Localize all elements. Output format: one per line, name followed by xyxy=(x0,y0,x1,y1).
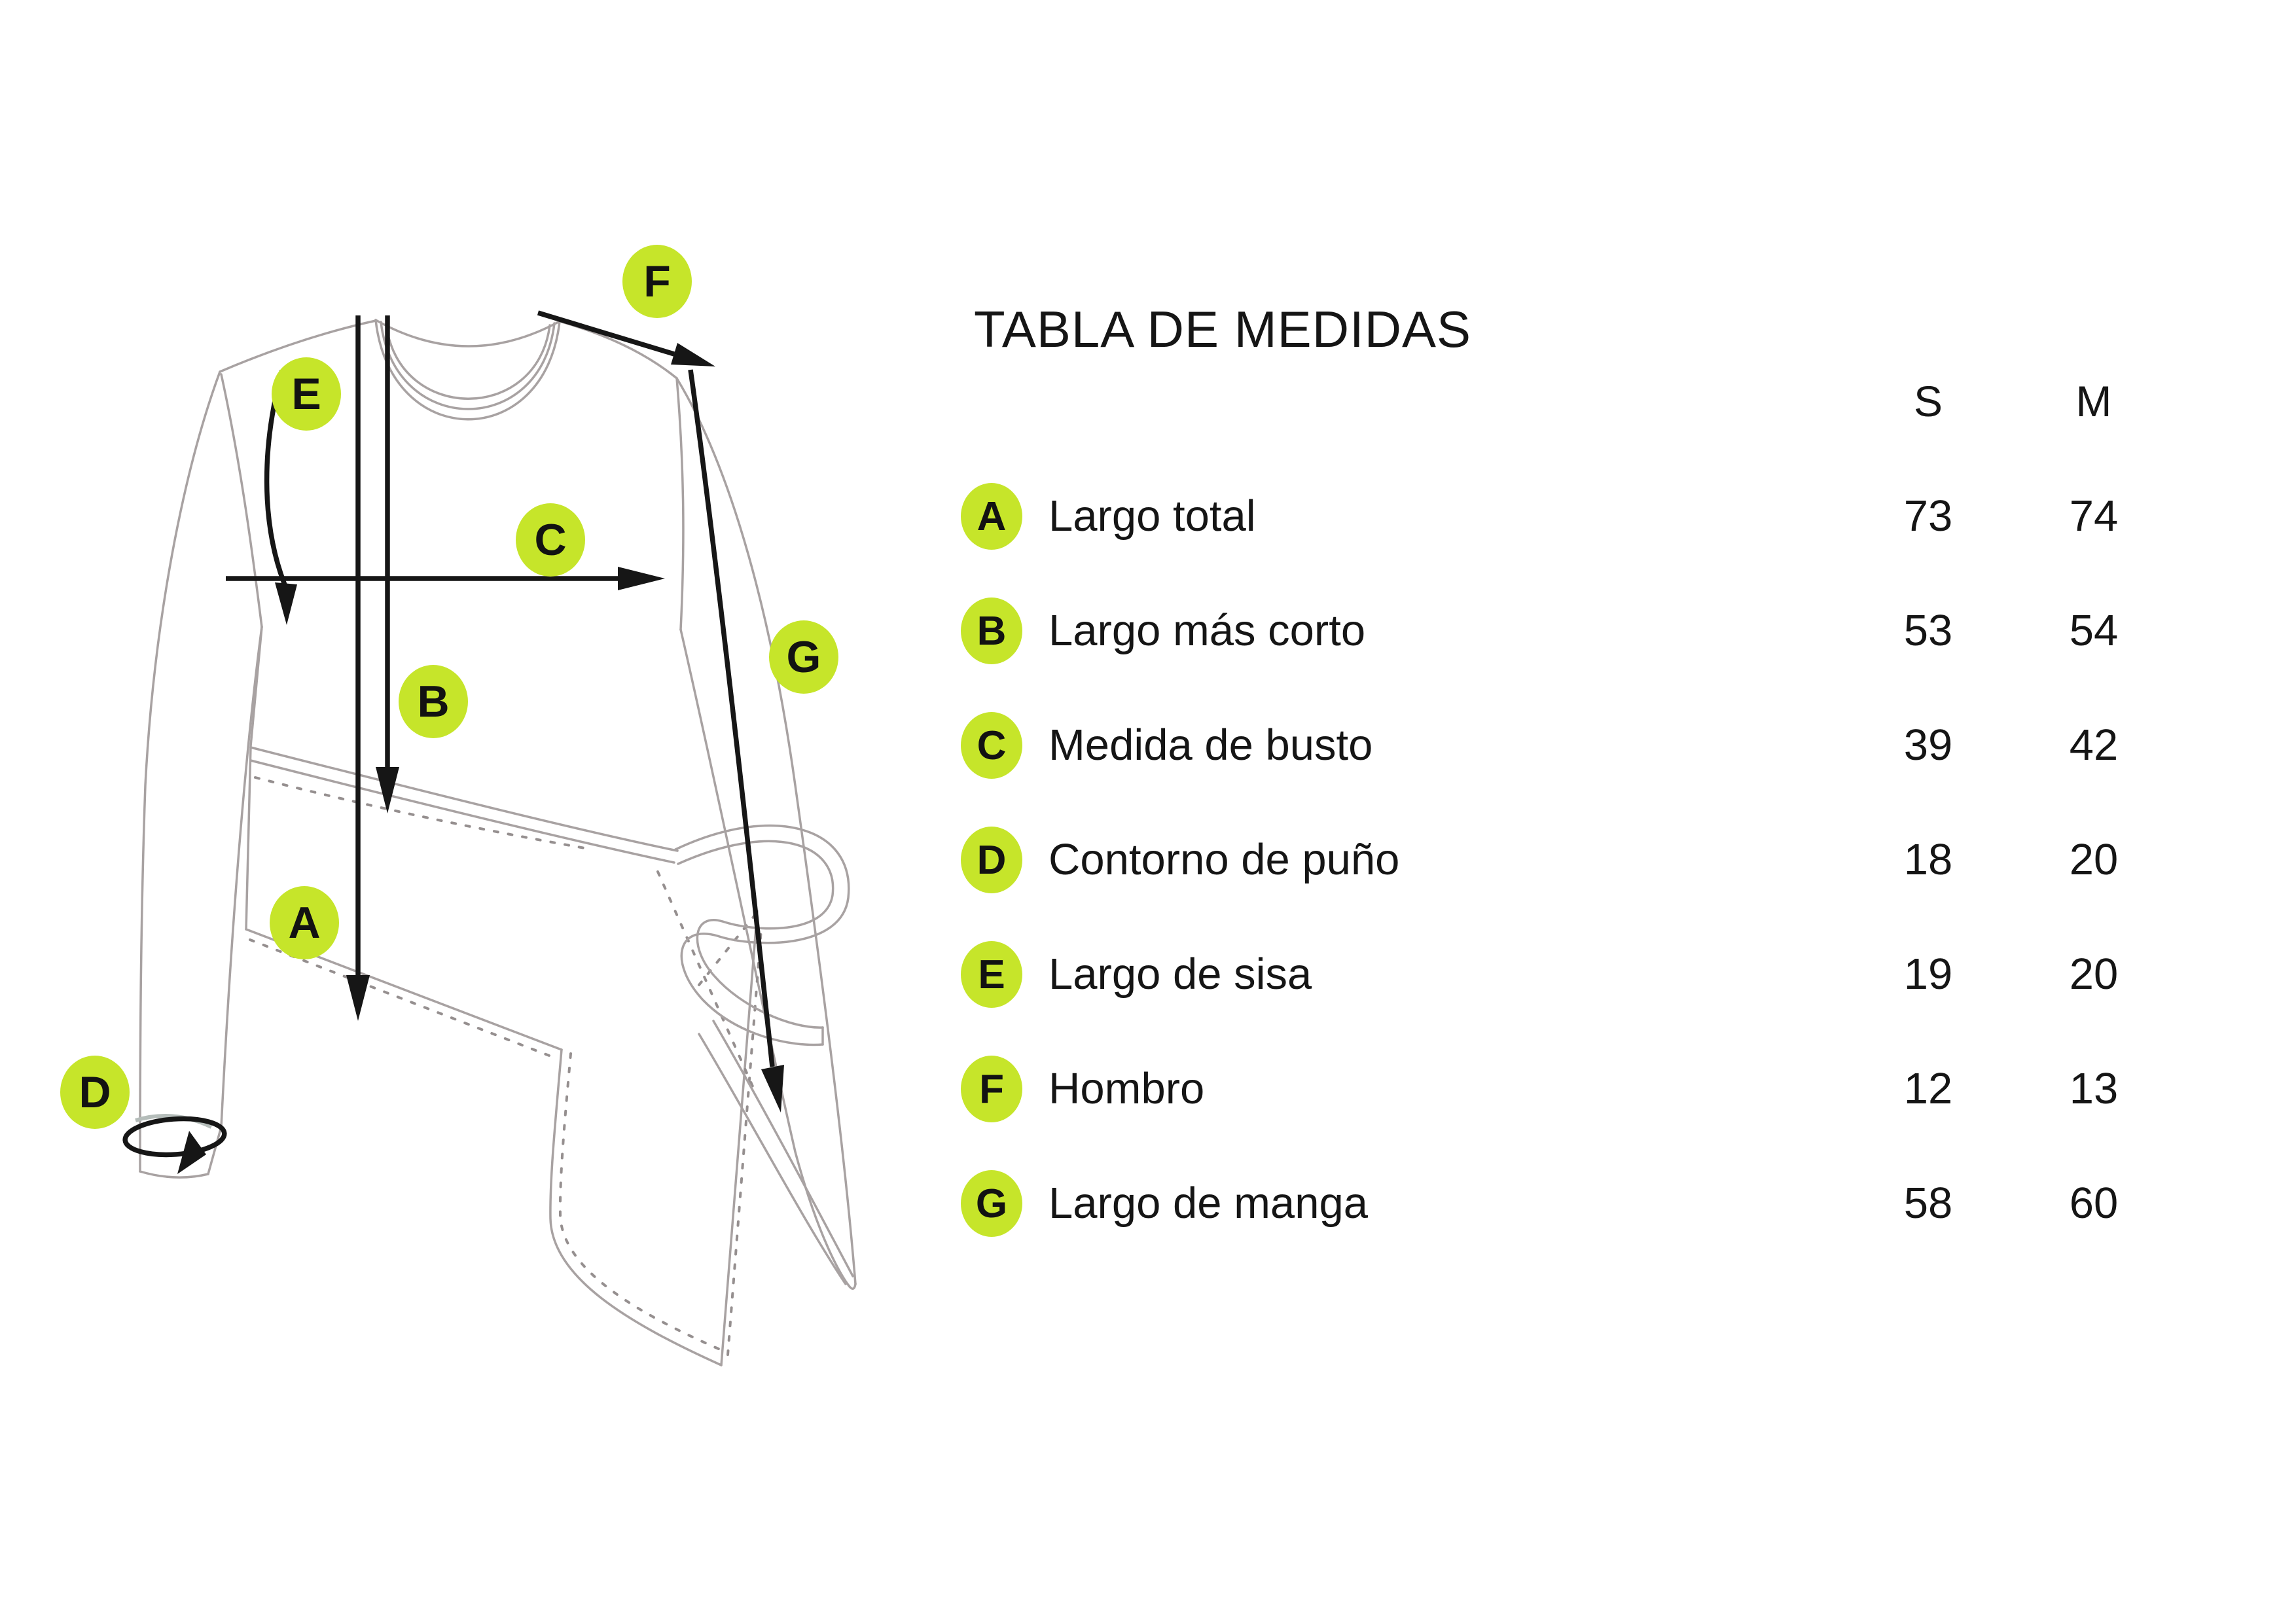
row-label-g: Largo de manga xyxy=(1049,1177,1368,1230)
size-chart-page: E F C B G A D TABLA DE MEDIDAS S M A Lar… xyxy=(0,0,2296,1623)
right-sleeve-outer-edge xyxy=(677,378,855,1284)
arrowhead-g-icon xyxy=(761,1065,784,1113)
row-label-d: Contorno de puño xyxy=(1049,833,1399,887)
waist-seam-lower xyxy=(251,760,674,863)
row-badge-a-letter: A xyxy=(977,493,1007,540)
diagram-badge-g: G xyxy=(769,620,838,694)
arrowhead-f-icon xyxy=(671,343,715,366)
diagram-badge-g-letter: G xyxy=(787,632,821,683)
diagram-badge-f-letter: F xyxy=(643,256,671,307)
measurement-arrows xyxy=(124,313,784,1174)
right-sleeve-inner-edge xyxy=(681,630,850,1287)
row-badge-f-letter: F xyxy=(979,1066,1004,1113)
diagram-badge-c: C xyxy=(516,503,585,577)
diagram-badge-b-letter: B xyxy=(417,676,449,727)
row-badge-g-letter: G xyxy=(976,1181,1007,1227)
row-label-b: Largo más corto xyxy=(1049,604,1365,658)
garment-technical-drawing xyxy=(0,0,2296,1623)
row-d-value-s: 18 xyxy=(1856,833,2000,887)
right-armhole-seam xyxy=(677,378,683,630)
row-f-value-s: 12 xyxy=(1856,1062,2000,1116)
row-b-value-s: 53 xyxy=(1856,604,2000,658)
page-title: TABLA DE MEDIDAS xyxy=(974,300,1471,359)
diagram-badge-c-letter: C xyxy=(534,514,566,565)
row-badge-c: C xyxy=(961,712,1022,779)
row-badge-d: D xyxy=(961,827,1022,893)
diagram-badge-e-letter: E xyxy=(291,368,321,419)
diagram-badge-d-letter: D xyxy=(79,1067,111,1118)
row-g-value-m: 60 xyxy=(2022,1177,2166,1230)
right-sleeve-tip xyxy=(850,1284,855,1289)
row-label-a: Largo total xyxy=(1049,490,1256,543)
row-g-value-s: 58 xyxy=(1856,1177,2000,1230)
front-panel-edge xyxy=(550,1050,721,1365)
left-cuff-bottom xyxy=(140,1171,208,1177)
row-badge-g: G xyxy=(961,1170,1022,1237)
diagram-badge-b: B xyxy=(399,665,468,738)
diagram-badge-e: E xyxy=(272,357,341,431)
arrowhead-b-icon xyxy=(376,767,399,813)
left-armhole-seam xyxy=(221,374,262,627)
under-layer-stitch-1 xyxy=(658,872,753,1086)
row-a-value-s: 73 xyxy=(1856,490,2000,543)
row-label-c: Medida de busto xyxy=(1049,719,1372,772)
row-e-value-s: 19 xyxy=(1856,948,2000,1001)
row-badge-b-letter: B xyxy=(977,608,1007,654)
front-panel-stitch xyxy=(560,1054,720,1349)
arrowhead-a-icon xyxy=(346,975,370,1021)
row-a-value-m: 74 xyxy=(2022,490,2166,543)
row-badge-c-letter: C xyxy=(977,722,1007,769)
diagram-badge-a-letter: A xyxy=(288,897,320,948)
row-label-f: Hombro xyxy=(1049,1062,1204,1116)
row-e-value-m: 20 xyxy=(2022,948,2166,1001)
row-f-value-m: 13 xyxy=(2022,1062,2166,1116)
column-header-m: M xyxy=(2022,375,2166,427)
diagram-badge-f: F xyxy=(622,245,692,318)
left-sleeve-outer-edge xyxy=(140,372,220,1171)
diagram-badge-a: A xyxy=(270,886,339,959)
left-cuff-side xyxy=(208,1127,221,1174)
arrowhead-e-icon xyxy=(275,582,297,625)
row-label-e: Largo de sisa xyxy=(1049,948,1312,1001)
waist-seam-upper xyxy=(251,747,677,851)
back-panel-edge xyxy=(721,911,757,1365)
row-badge-b: B xyxy=(961,597,1022,664)
measure-line-g xyxy=(691,370,772,1067)
row-c-value-m: 42 xyxy=(2022,719,2166,772)
row-badge-a: A xyxy=(961,483,1022,550)
row-badge-e-letter: E xyxy=(978,952,1005,998)
arrowhead-c-icon xyxy=(618,567,665,590)
row-b-value-m: 54 xyxy=(2022,604,2166,658)
back-neck-line xyxy=(376,320,560,346)
row-d-value-m: 20 xyxy=(2022,833,2166,887)
row-badge-f: F xyxy=(961,1056,1022,1122)
row-badge-d-letter: D xyxy=(977,837,1007,883)
row-badge-e: E xyxy=(961,941,1022,1008)
row-c-value-s: 39 xyxy=(1856,719,2000,772)
waist-seam-stitch xyxy=(255,777,592,849)
diagram-badge-d: D xyxy=(60,1056,130,1129)
column-header-s: S xyxy=(1856,375,2000,427)
